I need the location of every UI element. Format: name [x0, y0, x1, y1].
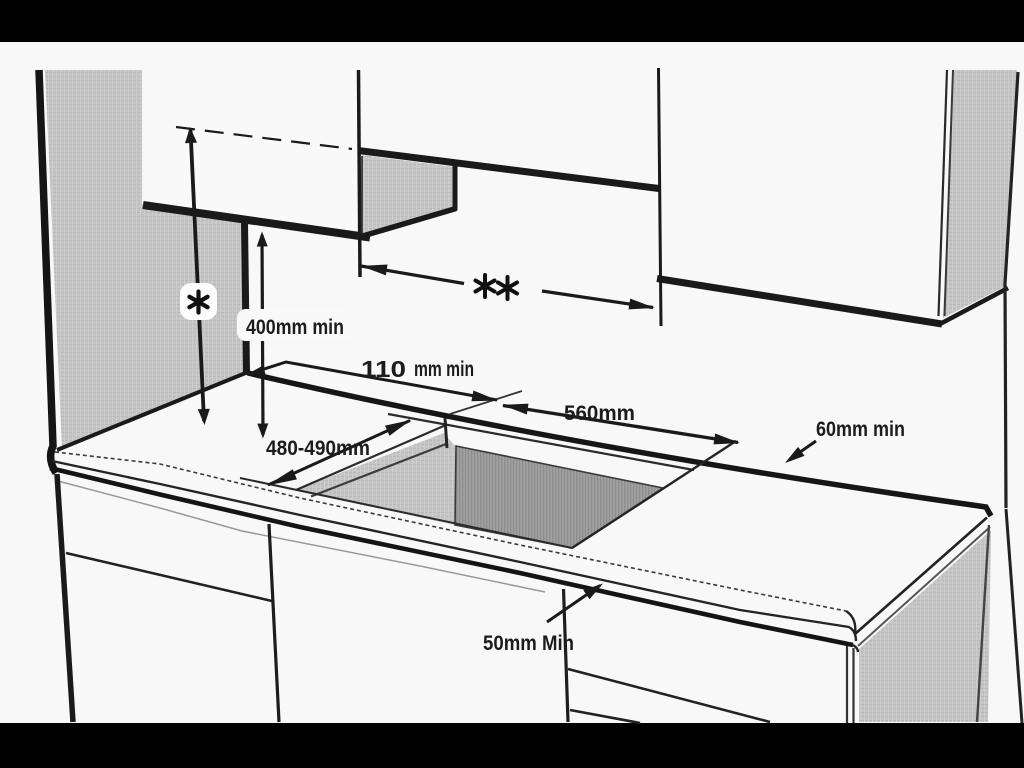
svg-text:50mm Min: 50mm Min — [483, 632, 574, 655]
svg-text:480-490mm: 480-490mm — [266, 437, 370, 460]
svg-text:60mm min: 60mm min — [816, 418, 905, 441]
svg-text:mm min: mm min — [414, 358, 474, 381]
svg-text:110: 110 — [361, 356, 406, 382]
svg-text:560mm: 560mm — [564, 402, 635, 425]
svg-text:400mm min: 400mm min — [246, 316, 344, 339]
